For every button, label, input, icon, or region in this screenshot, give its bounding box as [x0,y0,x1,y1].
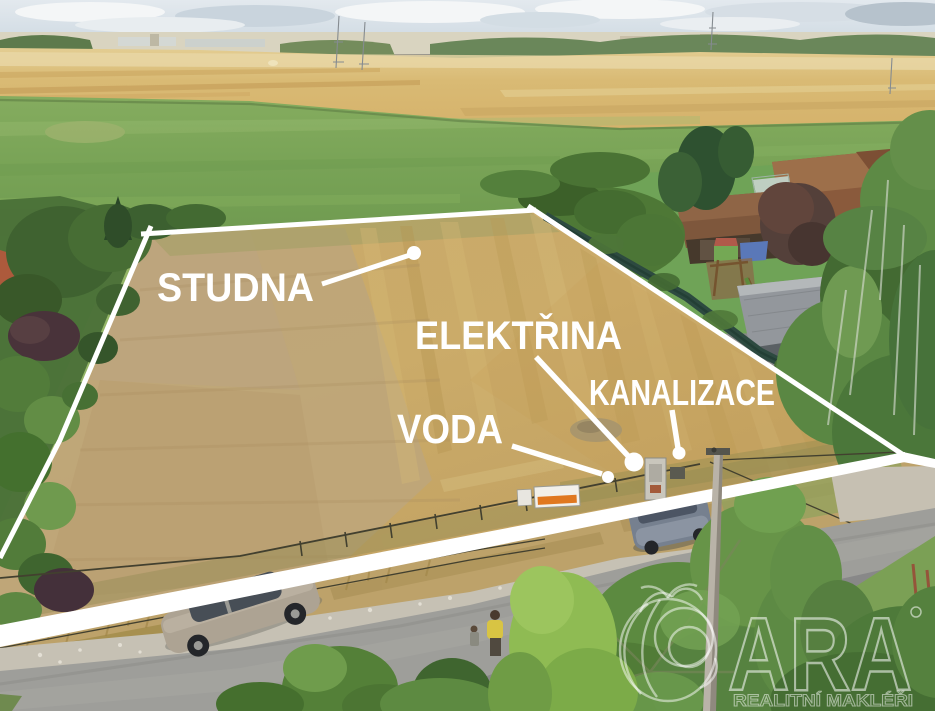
svg-text:VODA: VODA [397,406,503,452]
svg-text:STUDNA: STUDNA [157,266,314,310]
svg-text:KANALIZACE: KANALIZACE [589,372,775,413]
svg-text:ELEKTŘINA: ELEKTŘINA [415,312,622,358]
svg-text:REALITNÍ MAKLÉŘI: REALITNÍ MAKLÉŘI [733,691,913,710]
